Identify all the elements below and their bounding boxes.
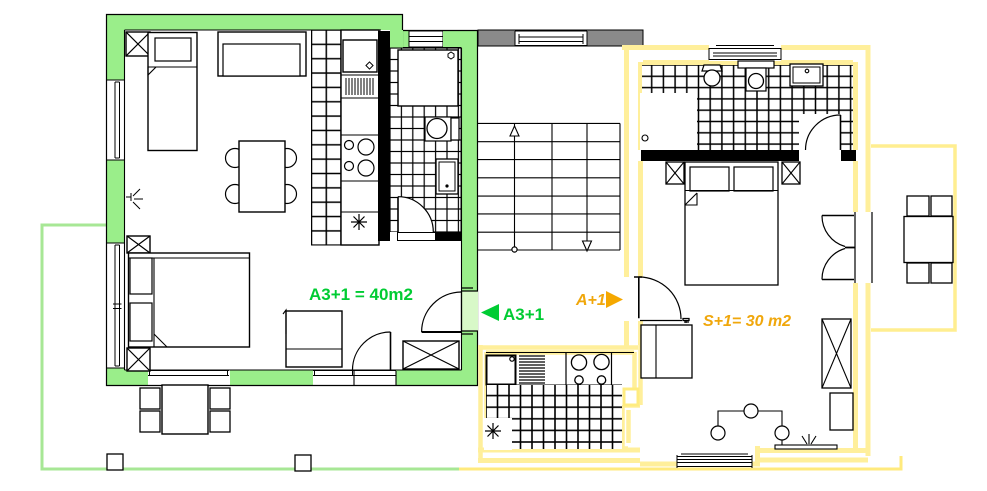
svg-text:A3+1: A3+1: [503, 305, 544, 324]
svg-text:A3+1 = 40m2: A3+1 = 40m2: [309, 285, 413, 304]
svg-text:S+1= 30 m2: S+1= 30 m2: [703, 313, 791, 330]
svg-text:A+1: A+1: [575, 292, 606, 309]
